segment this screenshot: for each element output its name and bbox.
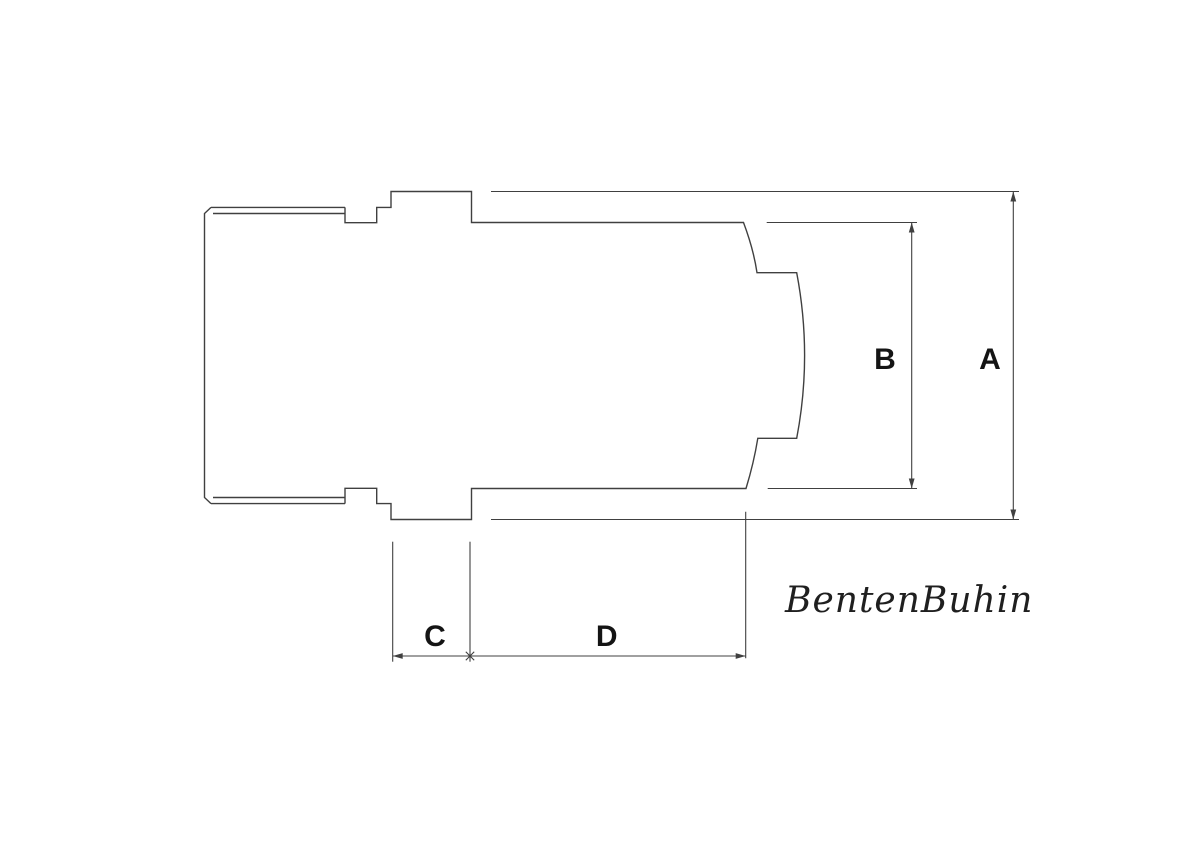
technical-drawing-canvas: A B C D BentenBuhin bbox=[0, 0, 1200, 848]
dim-label-b: B bbox=[874, 343, 896, 376]
dim-label-c: C bbox=[424, 620, 446, 653]
dim-label-d: D bbox=[596, 620, 618, 653]
page-background bbox=[0, 0, 1200, 848]
dim-label-a: A bbox=[979, 343, 1001, 376]
signature-text: BentenBuhin bbox=[784, 580, 1033, 621]
